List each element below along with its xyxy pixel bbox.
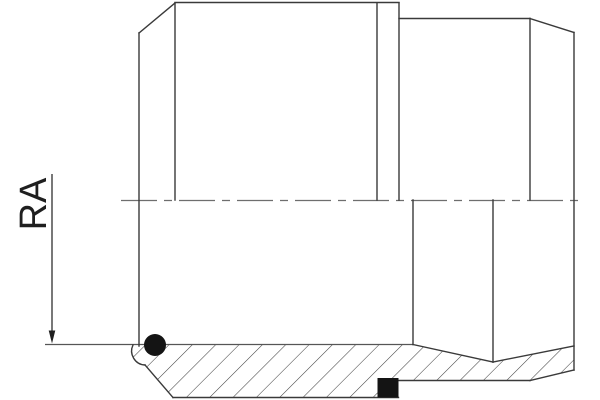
drawing-canvas: RA [0, 0, 600, 400]
part-outline-upper [139, 3, 574, 371]
nut-top-chamfer [530, 19, 574, 33]
dimension-arrowhead [49, 331, 56, 344]
section-hatching [132, 345, 574, 398]
dimension-ra: RA [13, 174, 55, 344]
left-weld-chamfer [139, 3, 175, 33]
technical-drawing: RA [0, 0, 600, 400]
seal-ring-square [378, 378, 399, 398]
dimension-label: RA [13, 177, 55, 230]
o-ring-seal [144, 334, 166, 356]
